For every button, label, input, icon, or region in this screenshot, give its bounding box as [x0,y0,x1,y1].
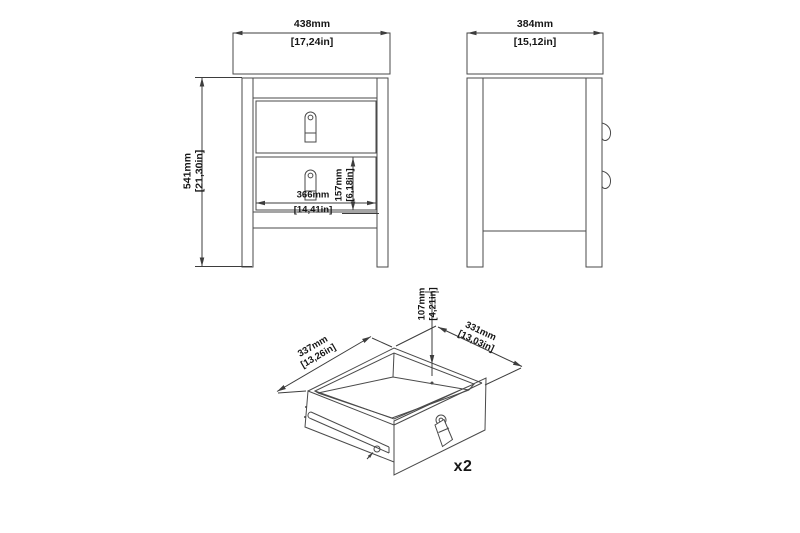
front-drawer-height-dim: 157mm [6,18in] [334,168,355,201]
front-inner-width-dim-in: [14,41in] [294,206,333,217]
drawer-quantity-label: x2 [454,458,473,476]
front-width-dim-mm: 438mm [294,19,330,31]
drawer-floor-screw-hole [431,382,434,385]
front-inner-width-dim-mm: 366mm [297,191,330,202]
drawer-isometric-drawing [304,348,486,475]
furniture-technical-drawing [0,0,800,533]
side-width-dim-in: [15,12in] [514,37,557,49]
front-view-drawing [233,33,390,267]
front-height-dim-mm: 541mm [182,150,194,193]
side-handle-loop-1-icon [602,123,611,140]
technical-drawing-page: 438mm [17,24in] 384mm [15,12in] 541mm [2… [0,0,800,533]
front-drawer-height-dim-in: [6,18in] [345,168,356,201]
side-width-dim-mm: 384mm [517,19,553,31]
front-width-dim-in: [17,24in] [291,37,334,49]
side-view-drawing [467,33,611,267]
side-handle-loop-2-icon [602,171,611,188]
drawer-box-height-dim-in: [4,21in] [428,287,439,320]
front-height-dim-in: [21,30in] [194,150,206,193]
drawer-box-height-dim: 107mm [4,21in] [417,287,438,320]
front-height-dim: 541mm [21,30in] [182,150,206,193]
